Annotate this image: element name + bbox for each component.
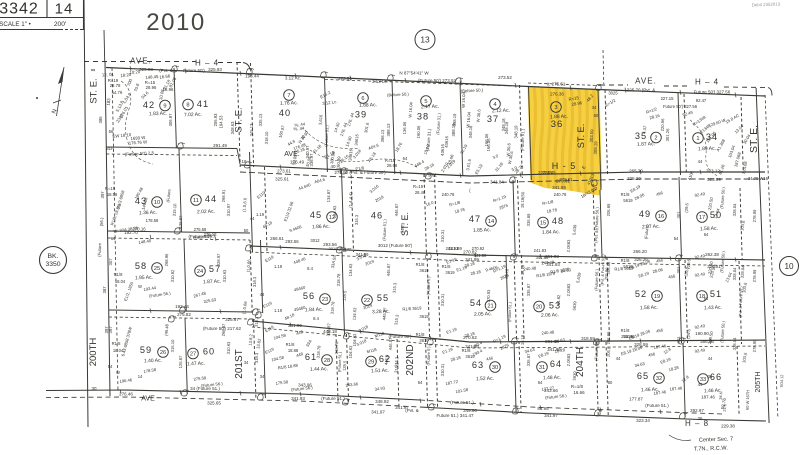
- svg-text:34616: 34616: [354, 133, 360, 146]
- svg-text:W 16.04: W 16.04: [461, 91, 467, 108]
- svg-text:64: 64: [704, 296, 709, 301]
- svg-text:28.96: 28.96: [387, 163, 398, 168]
- svg-text:5619: 5619: [623, 198, 633, 203]
- svg-text:276.36: 276.36: [550, 92, 564, 97]
- svg-text:227.15: 227.15: [661, 96, 674, 101]
- svg-text:3619: 3619: [445, 270, 455, 275]
- svg-text:308.19: 308.19: [593, 141, 599, 155]
- svg-text:134.63: 134.63: [352, 307, 358, 321]
- svg-text:325.93: 325.93: [208, 67, 222, 72]
- svg-text:194.53: 194.53: [219, 115, 224, 128]
- svg-text:315.10: 315.10: [170, 339, 175, 353]
- svg-text:ST. E.: ST. E.: [748, 125, 760, 153]
- svg-text:104.63: 104.63: [348, 345, 353, 359]
- svg-text:223.45: 223.45: [543, 170, 557, 175]
- svg-text:328.04: 328.04: [732, 337, 737, 351]
- svg-text:270.93: 270.93: [486, 289, 491, 303]
- svg-text:21.6: 21.6: [723, 404, 728, 412]
- svg-text:21: 21: [487, 304, 493, 310]
- svg-text:1.84 Ac.: 1.84 Ac.: [305, 307, 323, 314]
- svg-text:W: W: [138, 284, 142, 289]
- svg-text:43616: 43616: [444, 135, 449, 147]
- svg-text:23: 23: [322, 297, 328, 303]
- svg-text:5639: 5639: [572, 370, 578, 380]
- svg-text:268.96: 268.96: [164, 253, 169, 267]
- svg-text:13: 13: [420, 35, 430, 45]
- svg-text:65: 65: [637, 371, 649, 381]
- svg-text:18.18: 18.18: [504, 268, 510, 279]
- svg-text:128.5: 128.5: [342, 360, 348, 371]
- svg-text:291.49: 291.49: [213, 143, 227, 148]
- svg-text:134.63: 134.63: [332, 205, 337, 219]
- svg-text:44: 44: [698, 159, 703, 164]
- svg-text:241.93: 241.93: [446, 246, 459, 251]
- svg-text:47: 47: [469, 214, 481, 224]
- svg-text:19: 19: [654, 294, 660, 300]
- svg-text:28.46: 28.46: [415, 190, 426, 195]
- svg-text:58: 58: [135, 261, 147, 271]
- svg-text:64: 64: [704, 232, 709, 237]
- svg-text:11: 11: [193, 198, 199, 204]
- svg-text:1.44 Ac.: 1.44 Ac.: [310, 366, 328, 373]
- svg-text:24: 24: [197, 269, 203, 275]
- svg-text:R1/8: R1/8: [286, 342, 295, 347]
- svg-text:1.89 Ac.: 1.89 Ac.: [698, 146, 716, 153]
- svg-text:34.76: 34.76: [111, 90, 123, 96]
- svg-text:348.18: 348.18: [468, 125, 473, 139]
- svg-text:348.18: 348.18: [504, 121, 509, 135]
- svg-text:18.04: 18.04: [115, 279, 126, 284]
- svg-text:64: 64: [108, 364, 113, 369]
- svg-text:51: 51: [710, 289, 722, 299]
- svg-text:3.12 Lc.: 3.12 Lc.: [372, 79, 388, 84]
- svg-text:34: 34: [592, 105, 597, 110]
- svg-text:1.19: 1.19: [274, 264, 283, 269]
- svg-text:34: 34: [260, 374, 265, 379]
- svg-text:270.16: 270.16: [132, 227, 146, 232]
- svg-text:28.78: 28.78: [110, 83, 121, 88]
- svg-text:190.90: 190.90: [695, 331, 709, 336]
- svg-text:3012 (Future 50′): 3012 (Future 50′): [378, 243, 413, 248]
- svg-text:34.70 W16: 34.70 W16: [748, 176, 769, 181]
- svg-text:136.06: 136.06: [402, 121, 407, 135]
- svg-text:205.89: 205.89: [606, 203, 611, 217]
- svg-text:(Future 5′): (Future 5′): [426, 276, 432, 296]
- svg-text:2.0583: 2.0583: [566, 239, 571, 253]
- svg-text:R1/8: R1/8: [621, 328, 630, 333]
- svg-text:206.93: 206.93: [213, 113, 218, 126]
- svg-text:310.82: 310.82: [170, 269, 175, 283]
- svg-text:388.19: 388.19: [452, 113, 457, 127]
- svg-text:128.5: 128.5: [342, 290, 348, 301]
- svg-text:B1R: B1R: [106, 146, 114, 151]
- svg-text:268.97: 268.97: [221, 323, 226, 337]
- svg-text:18.96: 18.96: [163, 87, 174, 92]
- svg-text:3350: 3350: [45, 261, 60, 268]
- svg-text:1.95 Ac.: 1.95 Ac.: [135, 275, 153, 282]
- svg-text:Center Sec. 7: Center Sec. 7: [699, 436, 733, 443]
- svg-text:278.99: 278.99: [752, 269, 757, 283]
- svg-text:335.13: 335.13: [258, 113, 263, 127]
- svg-text:318.10: 318.10: [264, 131, 269, 145]
- svg-text:15: 15: [540, 221, 546, 227]
- svg-text:1.19: 1.19: [274, 308, 283, 313]
- svg-text:315.10: 315.10: [172, 203, 178, 217]
- svg-text:306.97: 306.97: [168, 113, 173, 126]
- svg-text:18.18: 18.18: [520, 334, 525, 345]
- svg-text:2.06 Ac.: 2.06 Ac.: [541, 312, 559, 319]
- svg-text:R1/8: R1/8: [621, 258, 630, 263]
- svg-text:335.89: 335.89: [526, 213, 531, 227]
- svg-text:445.87: 445.87: [386, 263, 391, 277]
- svg-text:310.97: 310.97: [226, 203, 231, 217]
- svg-text:1.85 Ac.: 1.85 Ac.: [473, 227, 491, 234]
- svg-text:6: 6: [361, 96, 364, 102]
- svg-text:134.87: 134.87: [326, 189, 331, 203]
- svg-text:8.4: 8.4: [307, 266, 313, 271]
- svg-text:30: 30: [492, 365, 498, 371]
- svg-text:205.89: 205.89: [606, 331, 611, 345]
- svg-text:240.78: 240.78: [442, 192, 455, 197]
- svg-text:54: 54: [470, 298, 482, 308]
- svg-text:387: 387: [102, 286, 107, 294]
- svg-text:2.05 Ac.: 2.05 Ac.: [474, 311, 492, 318]
- svg-text:1.43 Ac.: 1.43 Ac.: [704, 305, 722, 312]
- svg-text:385: 385: [98, 116, 103, 124]
- svg-text:1.83 Ac.: 1.83 Ac.: [149, 111, 167, 118]
- svg-text:64: 64: [111, 236, 116, 241]
- svg-text:55: 55: [377, 293, 389, 303]
- svg-text:64: 64: [403, 156, 408, 161]
- svg-text:160.06: 160.06: [416, 125, 421, 139]
- svg-text:325.20: 325.20: [627, 176, 641, 181]
- svg-text:2010: 2010: [146, 9, 205, 36]
- svg-text:Debit 2352013: Debit 2352013: [752, 1, 781, 7]
- svg-text:H – 4: H – 4: [195, 59, 219, 68]
- svg-text:(Future 5′): (Future 5′): [426, 346, 432, 366]
- svg-text:52: 52: [635, 289, 647, 299]
- svg-text:49: 49: [639, 209, 651, 219]
- svg-text:39: 39: [355, 110, 367, 120]
- svg-text:34: 34: [244, 360, 249, 365]
- svg-text:2.0583: 2.0583: [566, 353, 571, 367]
- svg-text:1.51 Ac.: 1.51 Ac.: [371, 368, 389, 375]
- svg-text:N 87°54′41″ W: N 87°54′41″ W: [399, 71, 429, 76]
- svg-text:125.87: 125.87: [178, 215, 183, 229]
- svg-text:3619: 3619: [419, 268, 429, 273]
- svg-text:8: 8: [91, 68, 97, 71]
- svg-text:(Future: (Future: [97, 242, 102, 257]
- svg-text:28: 28: [324, 358, 330, 364]
- svg-text:18.18(50: 18.18(50: [520, 191, 526, 208]
- svg-text:41: 41: [197, 99, 209, 109]
- svg-text:328.04: 328.04: [732, 203, 737, 217]
- svg-text:AVE: AVE: [141, 396, 155, 403]
- svg-text:341.89: 341.89: [552, 185, 566, 190]
- svg-text:1.87 Ac.: 1.87 Ac.: [203, 279, 221, 286]
- svg-text:134.63: 134.63: [348, 263, 353, 277]
- svg-text:301.26: 301.26: [665, 128, 670, 142]
- svg-text:(Future 51.): (Future 51.): [450, 400, 474, 405]
- svg-text:1.84 Ac.: 1.84 Ac.: [542, 229, 560, 236]
- svg-text:(Future 51.): (Future 51.): [321, 396, 345, 401]
- svg-text:26: 26: [160, 350, 166, 356]
- svg-text:Future 50′): Future 50′): [183, 68, 205, 73]
- svg-text:60: 60: [594, 113, 599, 118]
- svg-text:200′: 200′: [54, 21, 67, 28]
- svg-text:R1/8: R1/8: [114, 272, 123, 277]
- svg-text:64: 64: [418, 380, 423, 385]
- svg-text:323.99: 323.99: [707, 177, 721, 182]
- svg-text:325.70 (Pvt. &: 325.70 (Pvt. &: [627, 88, 656, 93]
- svg-text:H – 4: H – 4: [695, 78, 719, 87]
- svg-text:36: 36: [551, 119, 564, 130]
- svg-text:5639: 5639: [572, 300, 578, 310]
- svg-text:318.3: 318.3: [254, 352, 259, 363]
- svg-text:178.58: 178.58: [146, 218, 159, 223]
- svg-text:310.31: 310.31: [440, 363, 445, 377]
- svg-text:42: 42: [143, 100, 155, 110]
- svg-text:268.91: 268.91: [221, 189, 226, 203]
- svg-text:28.96: 28.96: [146, 85, 157, 90]
- svg-text:(Future 51.): (Future 51.): [508, 301, 513, 322]
- svg-text:166.06: 166.06: [484, 133, 489, 147]
- svg-text:(Future 51.): (Future 51.): [645, 403, 669, 408]
- svg-text:310.31: 310.31: [440, 229, 445, 243]
- svg-text:310.63: 310.63: [226, 341, 231, 355]
- svg-text:397: 397: [100, 191, 105, 199]
- svg-text:276.46: 276.46: [119, 392, 133, 397]
- svg-text:7: 7: [287, 93, 290, 99]
- svg-text:56: 56: [303, 291, 315, 301]
- svg-text:301: 301: [676, 266, 681, 274]
- svg-text:241.83: 241.83: [534, 248, 547, 253]
- svg-text:(Pvt. &: (Pvt. &: [405, 408, 419, 413]
- svg-text:25: 25: [154, 266, 160, 272]
- svg-text:125.87: 125.87: [178, 355, 183, 369]
- svg-text:14: 14: [55, 1, 74, 18]
- svg-text:266.20: 266.20: [633, 249, 647, 254]
- svg-text:(29.6: (29.6: [686, 328, 692, 339]
- svg-text:44: 44: [260, 292, 265, 297]
- svg-text:1.19: 1.19: [256, 212, 265, 217]
- svg-text:32: 32: [656, 376, 662, 382]
- svg-text:Future 50′) 327.56: Future 50′) 327.56: [694, 90, 731, 95]
- svg-text:84.95: 84.95: [537, 406, 549, 411]
- svg-text:1.36 Ac.: 1.36 Ac.: [139, 210, 157, 217]
- svg-text:54: 54: [674, 236, 679, 241]
- svg-text:323.34: 323.34: [636, 418, 650, 423]
- svg-text:13.8.2: 13.8.2: [248, 333, 254, 346]
- svg-text:64.82: 64.82: [556, 294, 561, 305]
- svg-text:R1/8: R1/8: [416, 332, 425, 337]
- svg-text:R1/8: R1/8: [442, 264, 451, 269]
- svg-text:177.87: 177.87: [629, 397, 643, 402]
- svg-text:29: 29: [368, 360, 374, 366]
- svg-text:44: 44: [708, 356, 713, 361]
- svg-text:3012: 3012: [310, 238, 320, 243]
- svg-text:315.3: 315.3: [400, 222, 406, 233]
- svg-text:348.63: 348.63: [230, 121, 235, 134]
- svg-text:63: 63: [472, 360, 484, 370]
- svg-text:310.63: 310.63: [222, 269, 227, 283]
- svg-text:341.93: 341.93: [291, 396, 305, 401]
- svg-text:14: 14: [138, 374, 143, 379]
- svg-text:R1/8: R1/8: [462, 348, 471, 353]
- svg-text:44: 44: [250, 216, 255, 221]
- svg-text:345.13: 345.13: [249, 123, 254, 136]
- svg-text:348.92: 348.92: [375, 399, 389, 404]
- svg-text:31: 31: [539, 365, 545, 371]
- svg-text:38: 38: [417, 112, 429, 122]
- svg-text:1.52 Ac.: 1.52 Ac.: [476, 376, 494, 383]
- svg-text:270.92: 270.92: [472, 246, 485, 251]
- svg-text:(56.): (56.): [99, 217, 104, 226]
- svg-text:T.7N., R.C.W.: T.7N., R.C.W.: [694, 445, 729, 452]
- svg-text:293.56: 293.56: [285, 239, 299, 244]
- svg-text:36: 36: [697, 416, 703, 421]
- svg-text:388.13: 388.13: [380, 129, 385, 143]
- svg-text:1.47 Ac.: 1.47 Ac.: [187, 361, 205, 368]
- svg-text:AVE.: AVE.: [130, 57, 152, 66]
- svg-text:18: 18: [241, 159, 247, 164]
- svg-text:14: 14: [488, 219, 494, 225]
- svg-text:(Future 50′) 273.52: (Future 50′) 273.52: [418, 78, 457, 83]
- svg-text:318.78: 318.78: [334, 341, 339, 355]
- svg-text:1.88 Ac.: 1.88 Ac.: [359, 102, 377, 109]
- svg-text:27: 27: [190, 352, 196, 358]
- svg-text:1: 1: [696, 136, 699, 142]
- svg-text:445.8: 445.8: [384, 354, 390, 365]
- svg-text:50: 50: [244, 228, 249, 233]
- svg-text:310.31: 310.31: [440, 293, 445, 307]
- svg-text:5.639: 5.639: [572, 224, 578, 235]
- svg-text:315.3: 315.3: [354, 214, 359, 225]
- svg-text:ST. E.: ST. E.: [89, 78, 100, 103]
- svg-text:9: 9: [163, 104, 166, 110]
- svg-text:397: 397: [104, 326, 109, 334]
- svg-text:60: 60: [203, 347, 215, 357]
- svg-text:(Future 51.): (Future 51.): [520, 128, 526, 151]
- svg-text:R1/8: R1/8: [416, 262, 425, 267]
- svg-text:278.99: 278.99: [752, 339, 757, 353]
- svg-text:Future 50′) 327.56: Future 50′) 327.56: [663, 104, 698, 109]
- svg-text:44: 44: [616, 356, 621, 361]
- svg-text:R1/8: R1/8: [112, 341, 121, 346]
- svg-text:3025: 3025: [608, 91, 618, 96]
- svg-text:388.13: 388.13: [386, 123, 391, 137]
- svg-text:2.02 Ac.: 2.02 Ac.: [197, 209, 215, 216]
- svg-text:183: 183: [106, 97, 112, 105]
- svg-text:205TH: 205TH: [755, 371, 762, 392]
- svg-text:328.97: 328.97: [216, 253, 221, 267]
- svg-text:341.97: 341.97: [544, 413, 558, 418]
- svg-text:44: 44: [205, 194, 217, 204]
- svg-text:341.89: 341.89: [356, 252, 369, 257]
- svg-text:16.66: 16.66: [573, 390, 585, 395]
- svg-text:64: 64: [550, 359, 562, 369]
- svg-text:335.87: 335.87: [526, 353, 531, 367]
- svg-text:3619: 3619: [419, 314, 429, 319]
- svg-text:36: 36: [708, 374, 713, 379]
- svg-text:10: 10: [154, 200, 160, 206]
- svg-text:59: 59: [140, 345, 152, 355]
- svg-text:205.8: 205.8: [606, 346, 612, 357]
- svg-text:318.59: 318.59: [581, 336, 595, 341]
- svg-text:2.0583: 2.0583: [566, 283, 571, 297]
- svg-text:BK.: BK.: [48, 253, 59, 260]
- svg-text:(1,4,4,4): (1,4,4,4): [348, 192, 354, 208]
- svg-text:64: 64: [538, 380, 543, 385]
- svg-text:335.87: 335.87: [526, 283, 531, 297]
- svg-text:(Pvt. &: (Pvt. &: [159, 68, 173, 73]
- svg-text:2.17 Ac.: 2.17 Ac.: [421, 104, 439, 111]
- svg-text:34.6: 34.6: [719, 392, 724, 400]
- svg-text:40: 40: [279, 108, 291, 118]
- svg-text:12, 01: 12, 01: [102, 72, 115, 78]
- svg-text:1.76 Ac.: 1.76 Ac.: [280, 100, 298, 107]
- svg-text:SCALE 1″ •: SCALE 1″ •: [0, 21, 31, 28]
- svg-text:(Future 56.): (Future 56.): [594, 338, 600, 360]
- svg-text:303.59: 303.59: [589, 129, 595, 143]
- svg-text:1.88 Ac.: 1.88 Ac.: [550, 114, 568, 121]
- svg-text:ST. E.: ST. E.: [234, 107, 245, 132]
- svg-text:265.20: 265.20: [629, 169, 643, 174]
- svg-text:44: 44: [698, 382, 703, 387]
- svg-text:202ND: 202ND: [405, 344, 416, 375]
- svg-text:8.4: 8.4: [313, 316, 319, 321]
- svg-text:3342: 3342: [0, 1, 39, 18]
- svg-text:445.87: 445.87: [388, 337, 393, 351]
- svg-text:275.18: 275.18: [204, 232, 217, 237]
- svg-text:1.86 Ac.: 1.86 Ac.: [312, 224, 330, 231]
- svg-text:Future 51.) 341.47: Future 51.) 341.47: [436, 413, 474, 418]
- svg-text:229.38: 229.38: [721, 424, 735, 429]
- svg-text:8: 8: [186, 103, 189, 109]
- svg-text:(Future 51.): (Future 51.): [382, 218, 388, 240]
- svg-text:60 W 16TH: 60 W 16TH: [745, 390, 751, 411]
- svg-text:17: 17: [699, 215, 705, 221]
- svg-text:266.61: 266.61: [270, 236, 284, 241]
- svg-text:SO4.12: SO4.12: [780, 374, 784, 387]
- svg-text:45: 45: [310, 210, 322, 220]
- svg-text:301: 301: [676, 211, 681, 219]
- svg-text:1.58 Ac.: 1.58 Ac.: [700, 226, 718, 233]
- svg-text:W: W: [116, 370, 120, 375]
- svg-text:445.87: 445.87: [394, 203, 399, 217]
- svg-text:1.87 Ac.: 1.87 Ac.: [637, 141, 655, 148]
- svg-text:3,616: 3,616: [318, 114, 324, 125]
- svg-text:325.93: 325.93: [139, 67, 153, 72]
- svg-text:16: 16: [658, 214, 664, 220]
- svg-text:2.12 Ac.: 2.12 Ac.: [492, 108, 510, 115]
- svg-text:R=19: R=19: [413, 184, 424, 189]
- svg-text:ST. E.: ST. E.: [576, 124, 586, 149]
- svg-text:46: 46: [371, 211, 383, 221]
- svg-text:(29.6: (29.6: [684, 202, 690, 213]
- svg-text:341.97: 341.97: [371, 410, 385, 415]
- svg-text:315.3: 315.3: [392, 282, 398, 293]
- svg-text:2: 2: [654, 136, 657, 142]
- svg-text:1.48 Ac.: 1.48 Ac.: [543, 375, 561, 382]
- svg-text:It. 275.51: It. 275.51: [547, 82, 566, 87]
- svg-text:92.47: 92.47: [696, 98, 707, 103]
- svg-text:R=1/8: R=1/8: [571, 384, 584, 389]
- svg-text:318.78: 318.78: [336, 273, 341, 287]
- svg-text:1.40 Ac.: 1.40 Ac.: [144, 358, 162, 365]
- svg-text:3.12 Ac.: 3.12 Ac.: [285, 76, 301, 81]
- svg-text:R1/8: R1/8: [621, 192, 630, 197]
